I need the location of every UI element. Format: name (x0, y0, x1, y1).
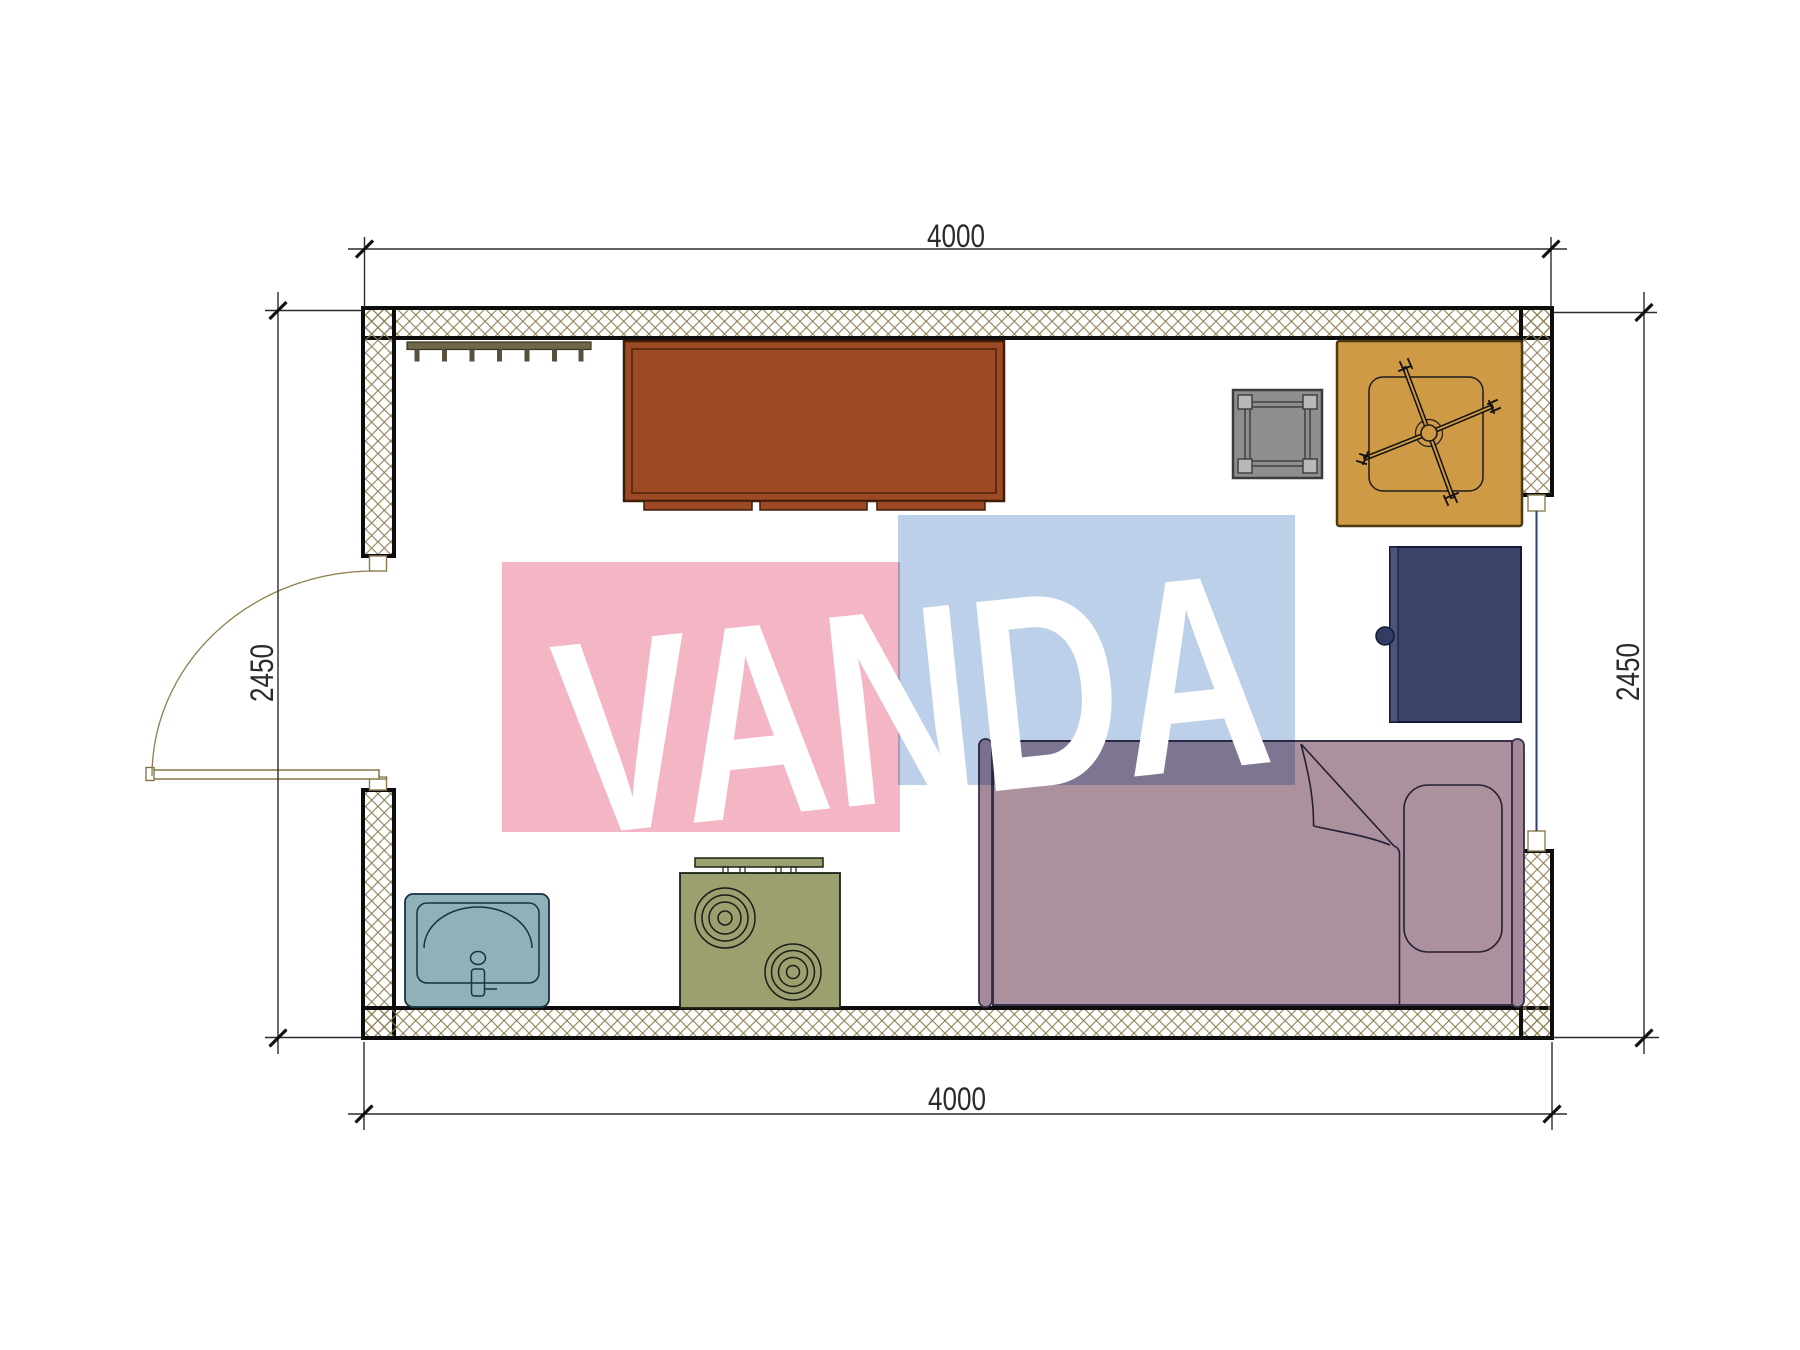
svg-text:4000: 4000 (928, 1081, 986, 1117)
svg-text:2450: 2450 (244, 644, 280, 702)
svg-text:2450: 2450 (1610, 643, 1646, 701)
svg-text:4000: 4000 (927, 218, 985, 254)
